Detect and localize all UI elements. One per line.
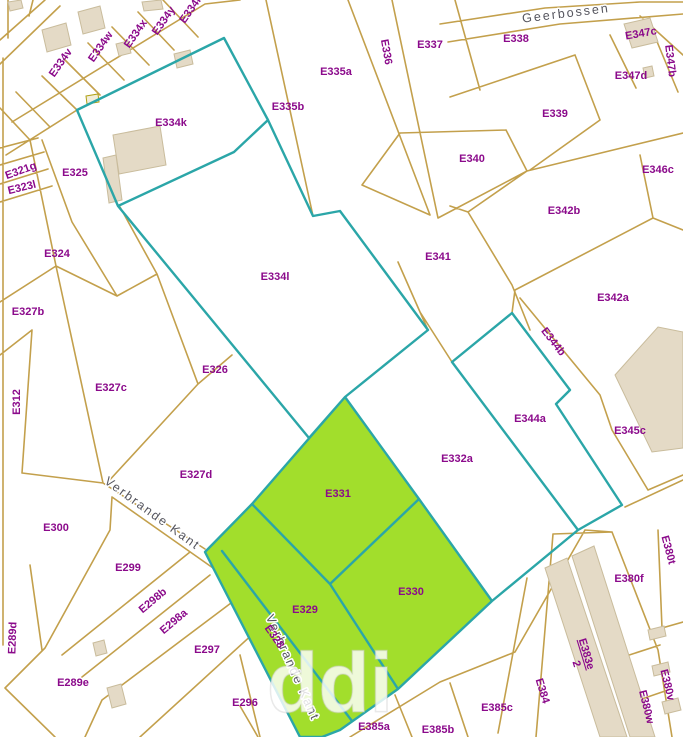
parcel-label-E342b: E342b <box>548 205 581 217</box>
parcel-label-E380f: E380f <box>614 573 644 585</box>
parcel-label-E299: E299 <box>115 562 141 574</box>
parcel-label-E327d: E327d <box>180 469 212 481</box>
cadastral-map-canvas[interactable]: GeerbossenVerbrande KantVerbrande Kant E… <box>0 0 683 737</box>
parcel-label-E340: E340 <box>459 153 485 165</box>
parcel-label-E341: E341 <box>425 251 451 263</box>
parcel-label-E297: E297 <box>194 644 220 656</box>
parcel-label-E327b: E327b <box>12 306 45 318</box>
building <box>142 0 163 11</box>
parcel-label-E338: E338 <box>503 33 529 45</box>
parcel-label-E289e: E289e <box>57 677 89 689</box>
parcel-label-E334k: E334k <box>155 117 188 129</box>
parcel-label-E329: E329 <box>292 604 318 616</box>
building <box>93 640 107 656</box>
parcel-label-E325: E325 <box>62 167 88 179</box>
parcel-label-E385c: E385c <box>481 702 513 714</box>
parcel-label-E332a: E332a <box>441 453 474 465</box>
parcel-label-E385b: E385b <box>422 724 455 736</box>
parcel-label-E326: E326 <box>202 364 228 376</box>
parcel-label-E300: E300 <box>43 522 69 534</box>
parcel-label-E345c: E345c <box>614 425 646 437</box>
parcel-label-E342a: E342a <box>597 292 630 304</box>
parcel-label-E312: E312 <box>11 389 23 415</box>
parcel-label-E324: E324 <box>44 248 71 260</box>
parcel-label-E346c: E346c <box>642 164 674 176</box>
parcel-label-E335b: E335b <box>272 101 305 113</box>
parcel-label-E289d: E289d <box>6 622 19 655</box>
parcel-label-E344a: E344a <box>514 413 547 425</box>
parcel-label-E347d: E347d <box>615 70 647 82</box>
parcel-label-E334l: E334l <box>261 271 290 283</box>
parcel-label-E337: E337 <box>417 39 443 51</box>
watermark-layer: ddi <box>267 636 393 730</box>
parcel-label-E327c: E327c <box>95 382 127 394</box>
parcel-label-E330: E330 <box>398 586 424 598</box>
parcel-label-E339: E339 <box>542 108 568 120</box>
building <box>113 126 166 174</box>
parcel-label-E331: E331 <box>325 488 351 500</box>
map-watermark: ddi <box>267 636 393 730</box>
parcel-label-E335a: E335a <box>320 66 353 78</box>
parcel-label-E296: E296 <box>232 697 258 709</box>
